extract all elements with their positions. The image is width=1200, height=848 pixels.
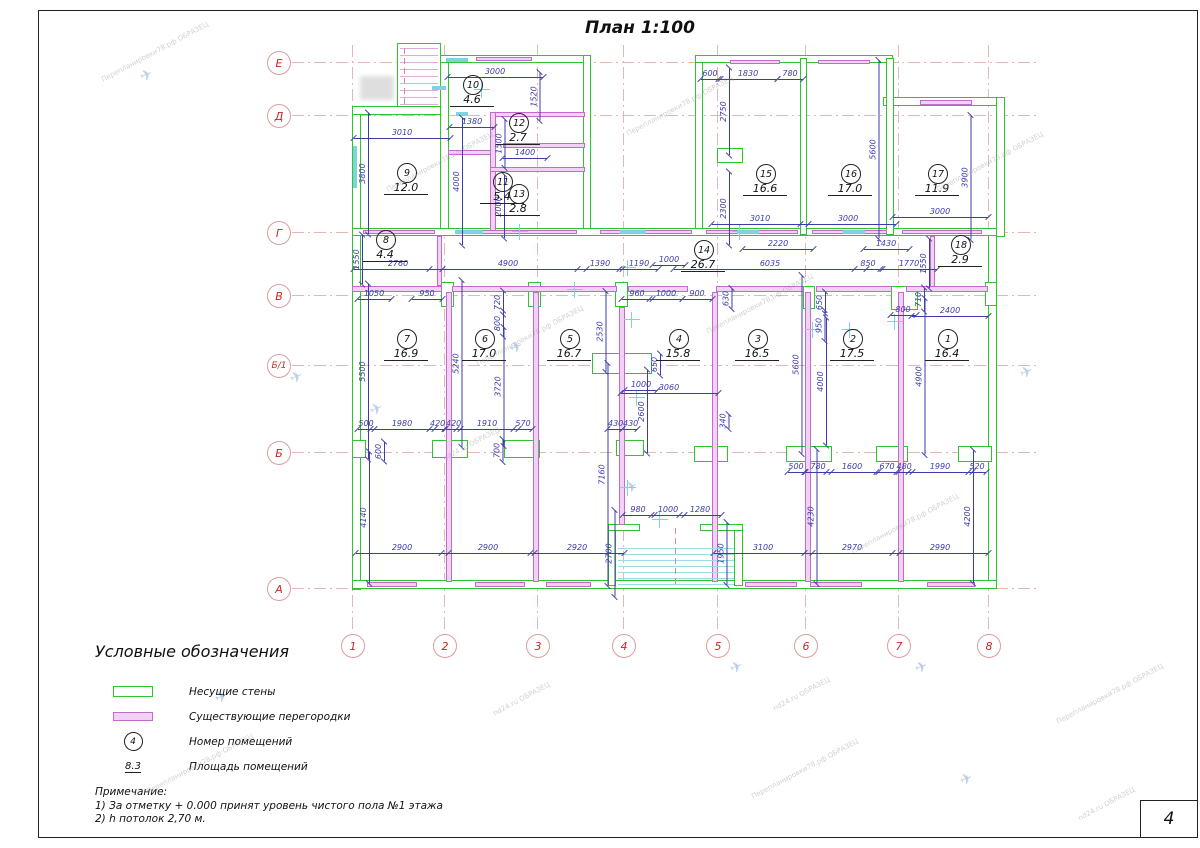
dimension: 1910 xyxy=(457,419,518,430)
dimension: 780 xyxy=(778,69,803,80)
dimension-value: 4230 xyxy=(808,450,816,584)
dimension: 4900 xyxy=(430,259,586,270)
partition-wall xyxy=(367,582,417,587)
legend-item-label: Существующие перегородки xyxy=(189,711,350,723)
room-area: 16.9 xyxy=(384,347,428,361)
dimension: 630 xyxy=(722,289,733,309)
partition-wall xyxy=(730,60,780,64)
dimension-value: 900 xyxy=(683,290,712,298)
dimension-value: 1550 xyxy=(920,239,928,288)
page-number: 4 xyxy=(1140,800,1198,838)
dimension: 570 xyxy=(514,419,532,430)
room-area-icon: 8.3 xyxy=(95,761,171,773)
dimension: 1280 xyxy=(680,505,721,516)
dimension-value: 4140 xyxy=(360,452,368,583)
partition-wall xyxy=(546,582,591,587)
dimension-value: 2300 xyxy=(720,172,728,245)
room-area: 16.7 xyxy=(547,347,591,361)
room-number-icon: 4 xyxy=(95,732,171,751)
dimension: 4900 xyxy=(915,299,926,455)
stair-step-line xyxy=(400,90,438,91)
wall xyxy=(695,55,703,235)
window-mark xyxy=(456,112,468,116)
window-mark xyxy=(432,86,446,90)
dimension-value: 600 xyxy=(375,442,383,461)
dimension: 1980 xyxy=(371,419,434,430)
dimension: 2300 xyxy=(719,172,730,245)
stair-step-line xyxy=(400,62,438,63)
partition-wall xyxy=(600,230,692,234)
dimension: 420 xyxy=(430,419,444,430)
dimension-value: 1280 xyxy=(680,506,721,514)
plan-title: План 1:100 xyxy=(540,18,740,38)
dimension-value: 340 xyxy=(720,415,728,429)
partition-wall xyxy=(816,286,892,292)
room-area: 17.0 xyxy=(828,182,872,196)
dimension: 2920 xyxy=(531,543,624,554)
dimension: 4230 xyxy=(807,450,818,584)
dimension-value: 950 xyxy=(412,290,442,298)
dimension-value: 2600 xyxy=(638,370,646,453)
room-number: 1 xyxy=(938,329,958,349)
dimension-value: 600 xyxy=(701,70,720,78)
window-mark xyxy=(620,230,646,234)
dimension: 1550 xyxy=(919,239,930,288)
partition-wall xyxy=(475,582,525,587)
dimension: 4140 xyxy=(359,452,370,583)
note-line: 1) За отметку + 0.000 принят уровень чис… xyxy=(95,800,443,813)
axis-circle: В xyxy=(267,284,291,308)
wall xyxy=(440,55,449,235)
room-area: 16.6 xyxy=(743,182,787,196)
dimension-value: 4200 xyxy=(964,450,972,583)
dimension-value: 1390 xyxy=(578,260,622,268)
partition-wall xyxy=(898,292,904,582)
legend-item-walls: Несущие стены xyxy=(95,679,455,704)
room-number: 7 xyxy=(397,329,417,349)
stair-step-line xyxy=(400,104,438,105)
axis-grid-line xyxy=(292,365,1040,366)
dimension-value: 500 xyxy=(788,463,804,471)
window-mark xyxy=(353,146,357,188)
partition-wall xyxy=(920,100,972,105)
dimension-value: 2220 xyxy=(743,240,813,248)
axis-circle: 6 xyxy=(794,634,818,658)
dimension-value: 960 xyxy=(622,290,652,298)
stair-axis-line xyxy=(675,528,676,588)
stair-step-line xyxy=(400,69,438,70)
dimension: 4000 xyxy=(452,118,463,245)
room-area: 4.4 xyxy=(363,248,407,262)
dimension-value: 1400 xyxy=(503,149,547,157)
dimension: 900 xyxy=(683,289,712,300)
wall xyxy=(800,58,807,235)
dimension: 3000 xyxy=(801,214,896,225)
dimension-value: 570 xyxy=(514,420,532,428)
dimension-value: 1000 xyxy=(650,290,682,298)
dimension-value: 3100 xyxy=(714,544,812,552)
stair-step-line xyxy=(400,76,438,77)
dimension: 2900 xyxy=(356,543,448,554)
dimension: 4000 xyxy=(816,318,827,445)
dimension-value: 1980 xyxy=(371,420,434,428)
dimension: 700 xyxy=(493,440,504,462)
dimension-value: 780 xyxy=(778,70,803,78)
dimension-value: 4900 xyxy=(430,260,586,268)
dimension-value: 420 xyxy=(430,420,444,428)
legend-item-partitions: Существующие перегородки xyxy=(95,704,455,729)
axis-circle: Б xyxy=(267,441,291,465)
stair-step-line xyxy=(400,55,438,56)
dimension-value: 4900 xyxy=(916,299,924,455)
dimension: 3000 xyxy=(893,207,988,218)
room-area: 16.4 xyxy=(925,347,969,361)
dimension: 5600 xyxy=(869,61,880,239)
dimension-value: 1910 xyxy=(457,420,518,428)
axis-circle: А xyxy=(267,577,291,601)
room-area: 16.5 xyxy=(735,347,779,361)
partition-swatch-icon xyxy=(95,712,171,721)
axis-circle: Е xyxy=(267,51,291,75)
dimension: 5600 xyxy=(792,276,803,454)
dimension: 600 xyxy=(374,442,385,461)
dimension: 3010 xyxy=(712,214,808,225)
room-number: 14 xyxy=(694,240,714,260)
dimension-value: 3000 xyxy=(448,68,543,76)
room-number: 16 xyxy=(841,164,861,184)
dimension: 5500 xyxy=(358,284,369,459)
dimension-value: 850 xyxy=(855,260,882,268)
dimension-value: 430 xyxy=(608,420,622,428)
stair-step-line xyxy=(400,48,438,49)
dimension: 4200 xyxy=(963,450,974,583)
window-cross-mark xyxy=(624,312,640,328)
legend: Условные обозначения Несущие стены Сущес… xyxy=(95,642,455,779)
room-area: 2.7 xyxy=(496,131,540,145)
dimension-value: 5500 xyxy=(359,284,367,459)
dimension-value: 3060 xyxy=(621,384,718,392)
window-mark xyxy=(446,58,468,62)
dimension: 3100 xyxy=(714,543,812,554)
room-number: 3 xyxy=(748,329,768,349)
room-number: 8 xyxy=(376,230,396,250)
dimension-value: 430 xyxy=(623,420,637,428)
dimension: 430 xyxy=(608,419,622,430)
dimension: 950 xyxy=(412,289,442,300)
dimension-value: 670 xyxy=(877,463,898,471)
window-cross-mark xyxy=(732,224,748,240)
legend-item-room-number: 4 Номер помещений xyxy=(95,729,455,754)
dimension: 2900 xyxy=(442,543,534,554)
dimension: 500 xyxy=(788,462,804,473)
legend-item-label: Несущие стены xyxy=(189,686,275,698)
dimension-value: 700 xyxy=(494,440,502,462)
dimension-value: 3010 xyxy=(712,215,808,223)
dimension: 1430 xyxy=(864,239,909,250)
dimension: 1000 xyxy=(650,289,682,300)
room-number: 2 xyxy=(843,329,863,349)
dimension-value: 2900 xyxy=(442,544,534,552)
blurred-stamp xyxy=(360,76,394,100)
room-number: 15 xyxy=(756,164,776,184)
dimension: 340 xyxy=(719,415,730,429)
dimension: 2220 xyxy=(743,239,813,250)
room-area: 15.8 xyxy=(656,347,700,361)
dimension-value: 2900 xyxy=(356,544,448,552)
dimension-value: 3000 xyxy=(801,215,896,223)
dimension-value: 1600 xyxy=(827,463,878,471)
dimension-value: 3000 xyxy=(893,208,988,216)
dimension-value: 4000 xyxy=(453,118,461,245)
dimension: 1600 xyxy=(827,462,878,473)
legend-item-room-area: 8.3 Площадь помещений xyxy=(95,754,455,779)
window-cross-mark xyxy=(512,224,528,240)
room-number: 4 xyxy=(669,329,689,349)
window-cross-mark xyxy=(567,282,583,298)
dimension: 850 xyxy=(855,259,882,270)
dimension: 980 xyxy=(623,505,654,516)
axis-circle: 4 xyxy=(612,634,636,658)
axis-circle: Б/1 xyxy=(267,354,291,378)
dimension: 1520 xyxy=(530,73,541,121)
wall-swatch-icon xyxy=(95,686,171,697)
axis-circle: 5 xyxy=(706,634,730,658)
room-area: 17.5 xyxy=(830,347,874,361)
dimension: 430 xyxy=(623,419,637,430)
dimension-value: 5600 xyxy=(870,61,878,239)
window-cross-mark xyxy=(620,480,636,496)
room-number: 18 xyxy=(951,235,971,255)
axis-circle: 8 xyxy=(977,634,1001,658)
dimension-value: 1520 xyxy=(531,73,539,121)
partition-wall xyxy=(745,582,797,587)
room-number: 5 xyxy=(560,329,580,349)
legend-title: Условные обозначения xyxy=(95,642,455,661)
room-area: 26.7 xyxy=(681,258,725,272)
stair-axis-line xyxy=(404,48,405,104)
dimension-value: 630 xyxy=(723,289,731,309)
stair-step-line xyxy=(400,83,438,84)
room-number: 6 xyxy=(475,329,495,349)
dimension-value: 2530 xyxy=(597,292,605,372)
dimension: 3000 xyxy=(448,67,543,78)
partition-wall xyxy=(818,60,870,64)
axis-circle: Г xyxy=(267,221,291,245)
room-number: 12 xyxy=(509,113,529,133)
dimension-value: 980 xyxy=(623,506,654,514)
partition-wall xyxy=(476,57,532,61)
dimension: 1400 xyxy=(503,148,547,159)
dimension-value: 3800 xyxy=(359,113,367,234)
room-area: 4.6 xyxy=(450,93,494,107)
axis-grid-line xyxy=(292,452,1040,453)
window-mark xyxy=(843,230,865,234)
drawing-sheet: План 1:100 12345678ЕДГВБ/1БА300015201380… xyxy=(0,0,1200,848)
dimension: 3060 xyxy=(621,383,718,394)
dimension-value: 1430 xyxy=(864,240,909,248)
dimension-value: 2920 xyxy=(531,544,624,552)
dimension: 670 xyxy=(877,462,898,473)
dimension: 3800 xyxy=(358,113,369,234)
wall xyxy=(694,446,728,462)
room-number: 10 xyxy=(463,75,483,95)
wall xyxy=(734,524,743,586)
room-area: 2.8 xyxy=(496,202,540,216)
axis-circle: Д xyxy=(267,104,291,128)
axis-circle: 7 xyxy=(887,634,911,658)
axis-circle: 3 xyxy=(526,634,550,658)
partition-wall xyxy=(363,230,435,234)
dimension-value: 4000 xyxy=(817,318,825,445)
dimension: 2600 xyxy=(637,370,648,453)
dimension: 1390 xyxy=(578,259,622,270)
dimension-value: 5600 xyxy=(793,276,801,454)
stair-step-line xyxy=(400,97,438,98)
room-area: 2.9 xyxy=(938,253,982,267)
note-line: 2) h потолок 2,70 м. xyxy=(95,813,443,826)
wall xyxy=(996,97,1005,237)
room-number: 13 xyxy=(509,184,529,204)
